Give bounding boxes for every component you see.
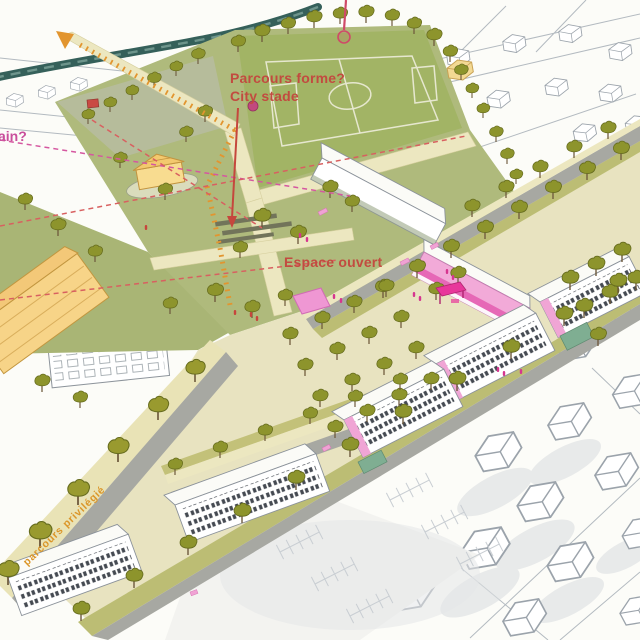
person-icon xyxy=(256,316,258,321)
person-icon xyxy=(497,367,499,372)
person-icon xyxy=(446,269,448,274)
person-icon xyxy=(452,275,454,280)
masterplan-illustration xyxy=(0,0,640,640)
person-icon xyxy=(419,296,421,301)
person-icon xyxy=(520,369,522,374)
person-icon xyxy=(333,294,335,299)
person-icon xyxy=(145,225,147,230)
person-icon xyxy=(299,233,301,238)
person-icon xyxy=(340,298,342,303)
person-icon xyxy=(413,292,415,297)
red-roof-shed xyxy=(87,99,99,108)
person-icon xyxy=(306,237,308,242)
person-icon xyxy=(503,371,505,376)
person-icon xyxy=(234,310,236,315)
person-icon xyxy=(250,312,252,317)
masterplan-canvas: Parcours forme? City stade Espace ouvert… xyxy=(0,0,640,640)
magenta-bush xyxy=(248,101,258,111)
